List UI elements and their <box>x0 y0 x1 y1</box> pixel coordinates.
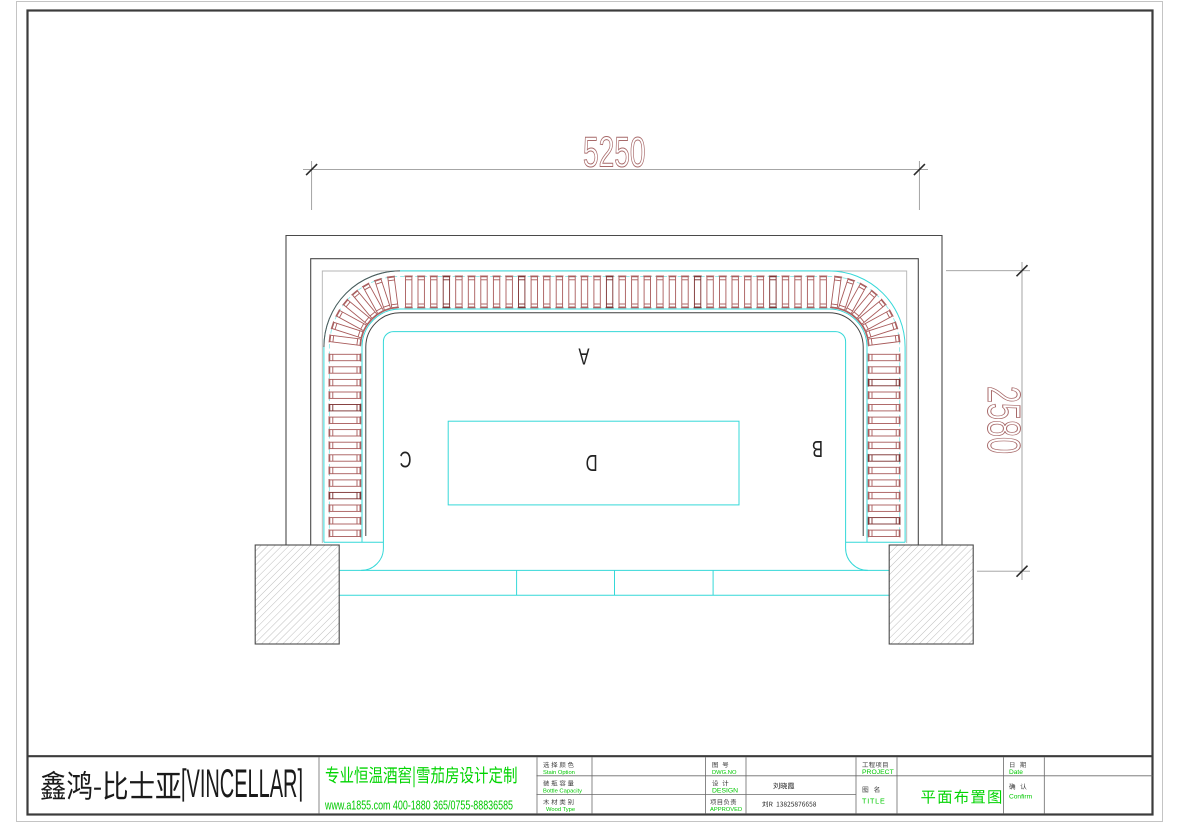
svg-text:5250: 5250 <box>583 129 646 177</box>
svg-text:Bottle Capacity: Bottle Capacity <box>543 788 582 794</box>
svg-text:2580: 2580 <box>978 386 1030 454</box>
svg-text:Wood Type: Wood Type <box>546 807 575 813</box>
svg-text:APPROVED: APPROVED <box>710 807 742 813</box>
svg-text:B: B <box>812 435 823 460</box>
svg-text:Date: Date <box>1009 769 1023 776</box>
svg-text:DWG.NO: DWG.NO <box>712 770 737 776</box>
svg-text:DESIGN: DESIGN <box>712 787 738 794</box>
svg-text:PROJECT: PROJECT <box>862 769 894 776</box>
svg-text:C: C <box>400 446 412 471</box>
svg-text:www.a1855.com 400-1880 365/075: www.a1855.com 400-1880 365/0755-88836585 <box>324 799 513 813</box>
svg-text:TITLE: TITLE <box>862 797 886 806</box>
svg-text:A: A <box>578 343 590 368</box>
svg-text:D: D <box>586 449 598 474</box>
svg-text:Confirm: Confirm <box>1009 794 1033 801</box>
svg-text:[VINCELLAR]: [VINCELLAR] <box>181 762 303 806</box>
svg-text:Stain Option: Stain Option <box>543 770 575 776</box>
